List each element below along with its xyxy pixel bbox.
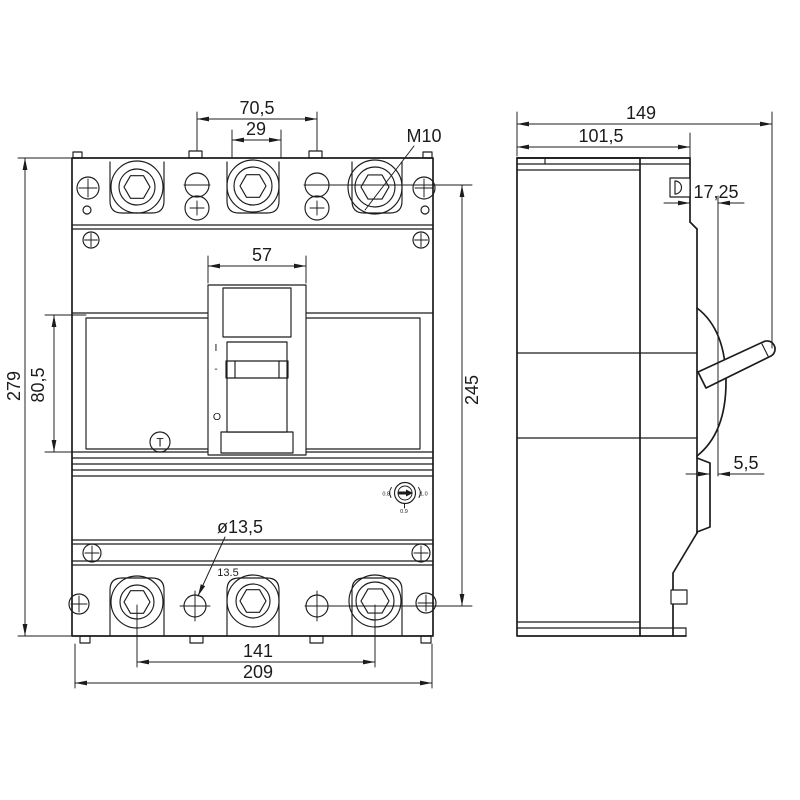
dial-mid-label: 0.9 (400, 509, 408, 515)
drawing-canvas: I - O T (0, 0, 800, 800)
side-body-lines (517, 158, 697, 636)
dim-depth: 149 (517, 103, 772, 348)
dash-mark: - (214, 363, 218, 375)
hex-socket-bolt (240, 590, 266, 613)
top-terminals (110, 160, 402, 220)
dim-face-offset: 17,25 (664, 182, 744, 476)
dim-window-width: 57 (208, 245, 306, 283)
dim-label-dia-13-5: ø13,5 (217, 517, 263, 537)
foot-lug (671, 590, 687, 604)
dim-label-17-25: 17,25 (693, 182, 738, 202)
dim-label-101-5: 101,5 (578, 126, 623, 146)
dim-label-57: 57 (252, 245, 272, 265)
dim-label-29: 29 (246, 119, 266, 139)
side-view (517, 158, 775, 636)
side-body-outline (517, 158, 726, 636)
dim-mount-pitch-v: 245 (304, 185, 482, 606)
toggle-handle-side[interactable] (698, 341, 775, 388)
dim-label-13-5-note: 13.5 (217, 567, 238, 579)
dim-pitch-inner: 29 (232, 119, 281, 158)
on-mark: I (215, 342, 218, 354)
hex-socket-bolt (124, 176, 150, 199)
off-mark: O (213, 411, 221, 423)
dim-label-141: 141 (243, 641, 273, 661)
dim-body-depth: 101,5 (517, 126, 690, 158)
dim-label-5-5: 5,5 (733, 453, 758, 473)
trip-button-mark[interactable]: T (156, 436, 164, 450)
bottom-terminals (110, 575, 402, 636)
dial-high-label: 1.0 (420, 492, 428, 498)
dim-label-80-5: 80,5 (28, 367, 48, 402)
dim-window-height: 80,5 (28, 315, 86, 452)
dim-label-149: 149 (626, 103, 656, 123)
side-rail-rib (697, 458, 710, 532)
dial-low-label: 0.8 (382, 492, 390, 498)
rating-dial[interactable]: 0.8 1.0 0.9 (382, 483, 427, 516)
handle-window (227, 342, 287, 432)
hex-socket-bolt (240, 175, 266, 198)
dim-label-209: 209 (243, 662, 273, 682)
accessory-clip (670, 178, 690, 197)
front-escutcheon-panel (208, 285, 306, 455)
hex-socket-bolt (361, 175, 389, 199)
mccb-outline-drawing: I - O T (0, 0, 800, 800)
thread-label-m10: M10 (406, 126, 441, 146)
base-foot-profile (673, 533, 697, 636)
dim-label-279: 279 (4, 371, 24, 401)
dim-label-245: 245 (462, 375, 482, 405)
dim-label-70-5: 70,5 (239, 98, 274, 118)
front-view: I - O T (69, 151, 436, 643)
